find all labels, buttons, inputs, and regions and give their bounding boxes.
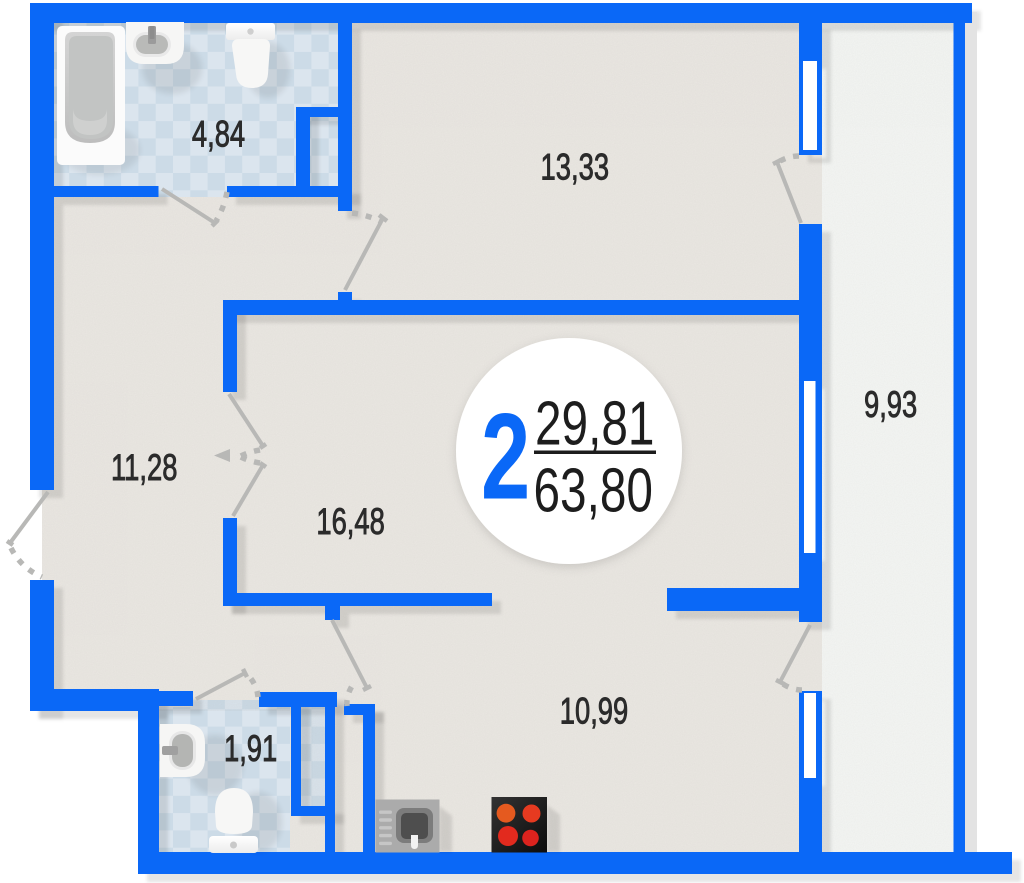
svg-text:11,28: 11,28 bbox=[111, 447, 177, 488]
svg-text:16,48: 16,48 bbox=[316, 501, 384, 542]
svg-text:4,84: 4,84 bbox=[192, 113, 245, 154]
svg-text:1,91: 1,91 bbox=[224, 728, 277, 769]
svg-text:63,80: 63,80 bbox=[534, 455, 653, 524]
svg-text:2: 2 bbox=[481, 387, 530, 525]
svg-text:13,33: 13,33 bbox=[541, 146, 609, 187]
svg-text:29,81: 29,81 bbox=[535, 389, 654, 458]
svg-text:10,99: 10,99 bbox=[560, 691, 628, 732]
svg-text:9,93: 9,93 bbox=[864, 384, 917, 425]
